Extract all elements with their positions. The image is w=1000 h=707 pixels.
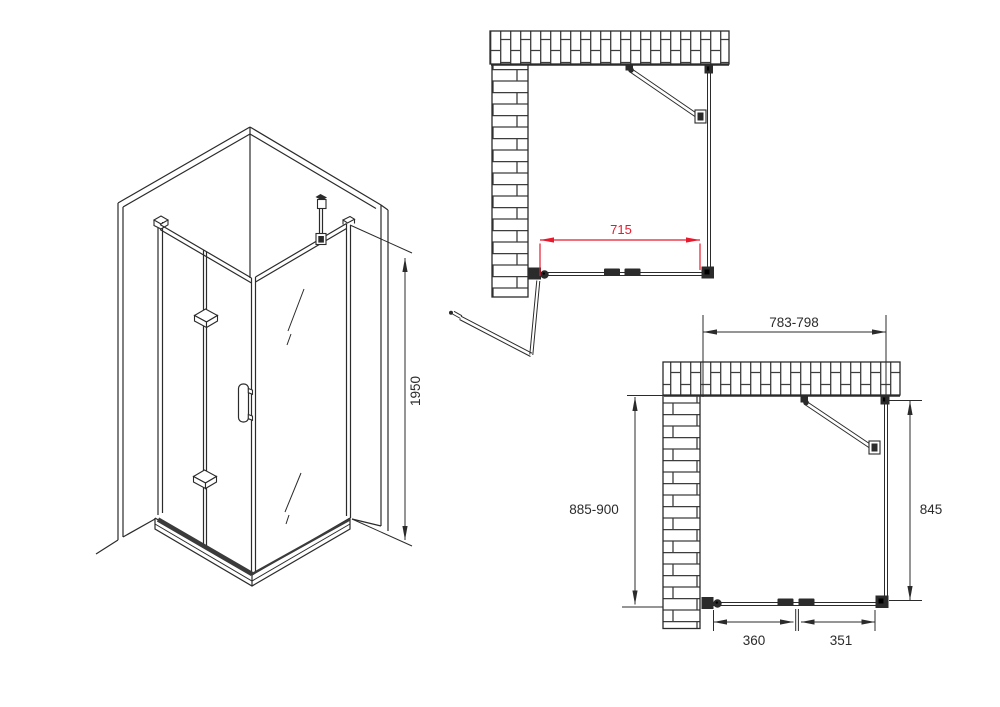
arrow-down xyxy=(402,526,407,540)
arrow-up xyxy=(632,397,637,411)
dimension-351: 351 xyxy=(801,610,875,648)
bar-wall-pivot xyxy=(628,67,634,73)
right-post-cap xyxy=(343,217,355,225)
dimension-715: 715 xyxy=(540,222,700,276)
door-threshold-rail xyxy=(158,520,252,575)
support-bar-lines xyxy=(630,69,702,120)
arrow-up xyxy=(402,258,407,272)
support-bar-lines xyxy=(804,401,876,451)
arrow-right xyxy=(862,619,876,624)
dimension-1950: 1950 xyxy=(350,225,423,540)
wall-pivot-bracket xyxy=(528,268,541,280)
dimension-label-door-right: 351 xyxy=(830,633,853,648)
bar-wall-pivot xyxy=(803,400,809,406)
left-wall-outline xyxy=(96,127,250,554)
front-glass-panel xyxy=(702,596,889,610)
dimension-label-depth: 885-900 xyxy=(569,502,619,517)
door-panel-1 xyxy=(530,281,540,356)
left-wall-profile-post xyxy=(158,222,163,515)
tray-base xyxy=(155,518,350,586)
arrow-down xyxy=(907,586,912,600)
bar-glass-clamp xyxy=(872,444,878,452)
fold-hinge-lower xyxy=(194,470,217,489)
arrow-left xyxy=(801,619,815,624)
support-bar-plan-top xyxy=(626,64,707,124)
arrow-right xyxy=(686,237,700,242)
dimension-label-height: 1950 xyxy=(408,376,423,406)
bracket-slit xyxy=(707,67,709,71)
support-bar-plan-bottom xyxy=(801,396,881,455)
side-glass-panel xyxy=(708,72,711,272)
door-handle-edge xyxy=(453,311,463,318)
corner-post xyxy=(252,277,256,575)
pivot-knob-highlight xyxy=(716,601,718,603)
support-bar-top-bracket xyxy=(318,200,327,209)
dimension-label-width: 715 xyxy=(610,222,632,237)
door-face-top-edge xyxy=(160,225,252,284)
handle-foot-bottom xyxy=(248,415,252,421)
floor-line xyxy=(352,519,412,546)
extension-lines xyxy=(889,401,922,601)
right-wall-outline xyxy=(250,127,388,531)
dimension-label-door-left: 360 xyxy=(743,633,766,648)
bar-glass-clamp xyxy=(698,113,704,121)
door-handle xyxy=(239,384,253,422)
wall-band-top xyxy=(663,362,900,395)
handle-foot-top xyxy=(248,389,252,395)
arrow-right xyxy=(872,329,886,334)
right-wall-profile-post xyxy=(347,224,351,519)
support-bar-glass-clamp xyxy=(318,236,324,243)
corner-bracket-slit xyxy=(705,270,710,275)
wall-band-left xyxy=(492,65,528,298)
center-hinge-right xyxy=(625,269,641,277)
side-panel-top-edge xyxy=(256,224,347,283)
center-hinge-left xyxy=(604,269,620,277)
isometric-view: 1950 xyxy=(96,127,423,586)
center-hinge-right xyxy=(799,599,815,607)
fold-hinge-upper xyxy=(195,309,218,328)
arrow-down xyxy=(632,591,637,605)
dimension-360: 360 xyxy=(714,609,799,648)
dimension-885-900: 885-900 xyxy=(569,396,663,608)
technical-drawing-canvas: 1950 xyxy=(0,0,1000,707)
support-bar-isometric xyxy=(316,194,328,245)
arrow-up xyxy=(907,401,912,415)
corner-bracket-slit xyxy=(879,599,884,604)
pivot-knob-highlight xyxy=(543,272,545,274)
arrow-right xyxy=(780,619,794,624)
wall-band-left xyxy=(663,396,700,629)
shower-tray xyxy=(155,518,350,586)
plan-view-bottom: 783-798 885-900 845 360 xyxy=(569,315,942,648)
glass-reflection-marks xyxy=(285,289,304,524)
handle-bar xyxy=(239,384,249,422)
front-glass-panel xyxy=(528,267,714,280)
extension-lines xyxy=(622,396,663,608)
dimension-label-side: 845 xyxy=(920,502,943,517)
door-fold-hinge-line xyxy=(204,251,207,549)
door-panel-2 xyxy=(460,316,533,356)
wall-pivot-bracket xyxy=(702,597,714,609)
side-glass-panel xyxy=(885,404,888,602)
bracket-slit xyxy=(883,398,885,402)
side-panel-rail xyxy=(252,520,350,575)
arrow-left xyxy=(540,237,554,242)
center-hinge-left xyxy=(778,599,794,607)
wall-band-top xyxy=(490,31,729,64)
shower-enclosure-drawing: 1950 xyxy=(0,0,1000,707)
arrow-left xyxy=(714,619,728,624)
door-handle-knob xyxy=(449,311,453,315)
left-post-cap xyxy=(154,216,168,229)
arrow-left xyxy=(703,329,717,334)
plan-view-top: 715 xyxy=(449,31,729,357)
dimension-label-width: 783-798 xyxy=(769,315,819,330)
dimension-845: 845 xyxy=(889,401,942,601)
